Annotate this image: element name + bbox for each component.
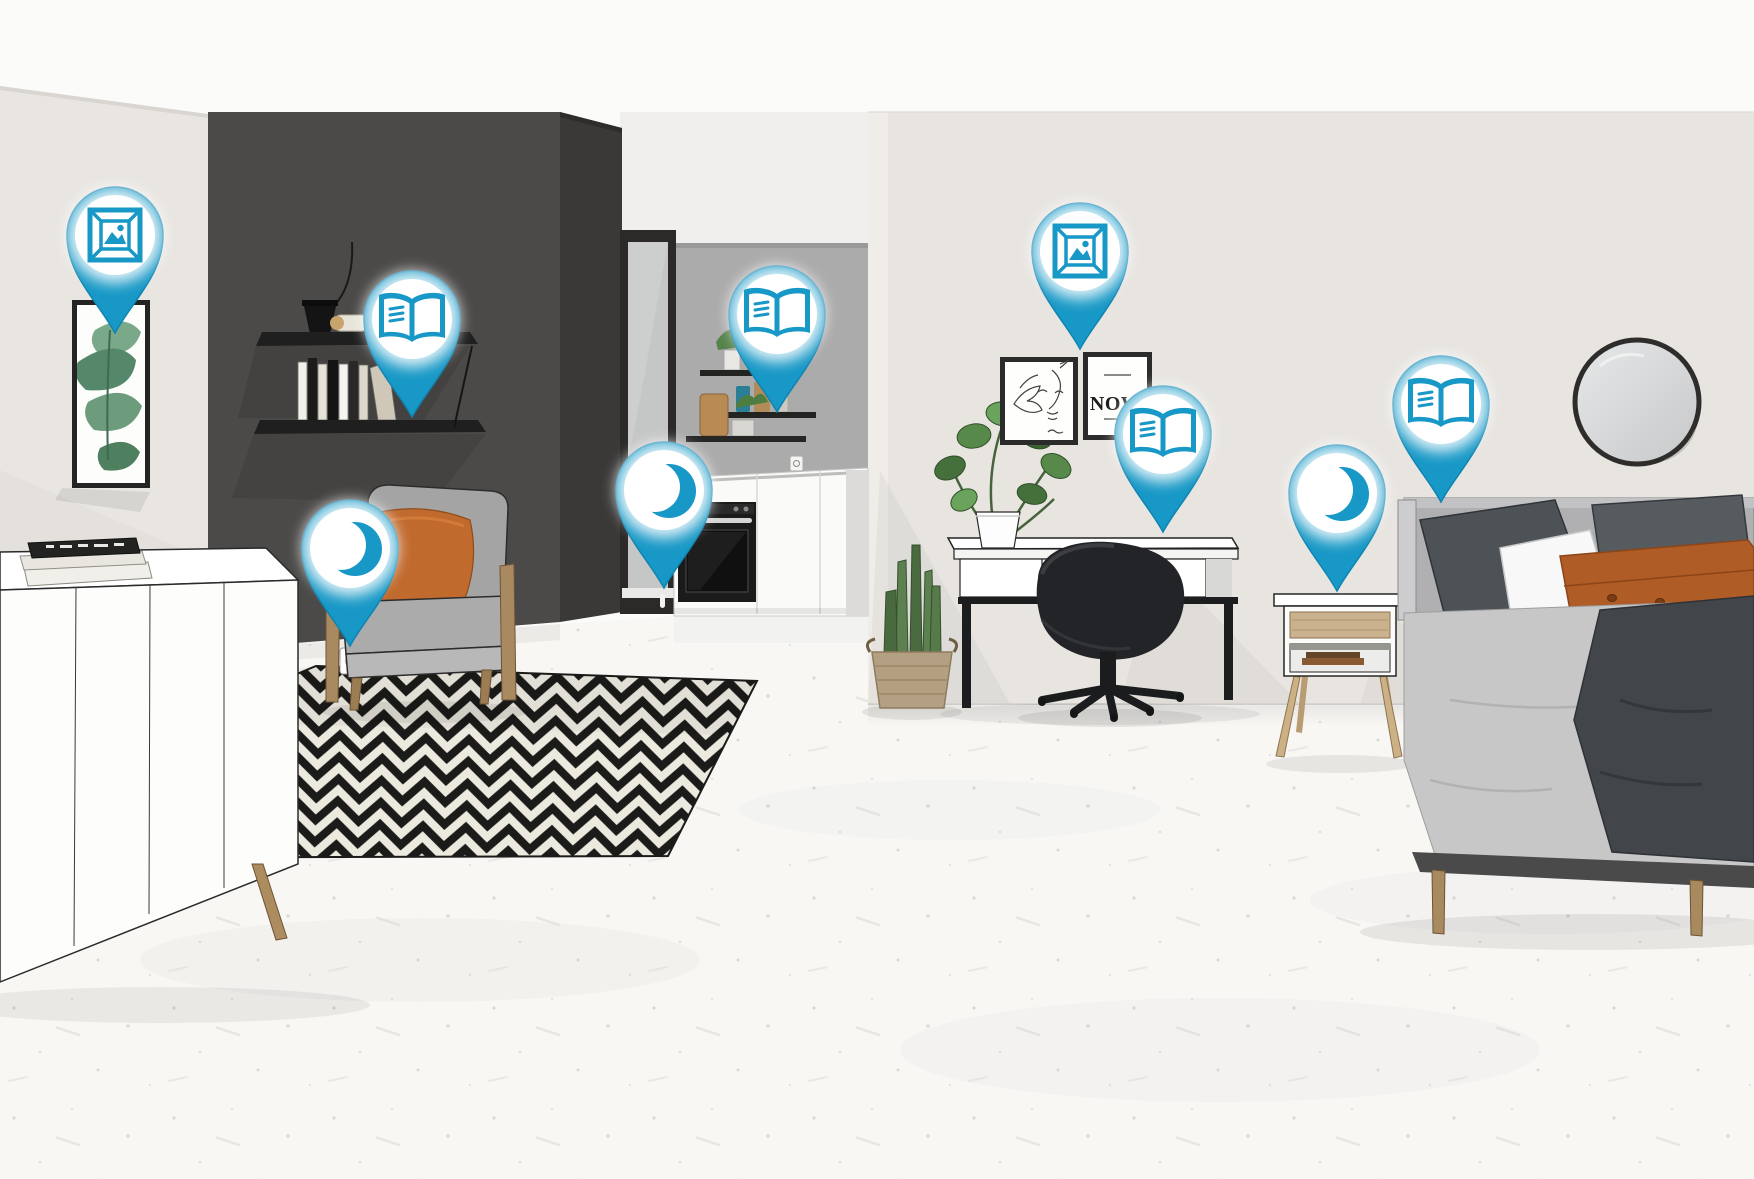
open-book-icon (1123, 394, 1203, 474)
hotspot-moon-living-room-armchair[interactable] (294, 492, 406, 649)
open-book-icon (737, 274, 817, 354)
picture-frame-icon (75, 195, 155, 275)
hotspot-moon-kitchen-doorway[interactable] (608, 434, 720, 591)
hotspot-layer (0, 0, 1754, 1179)
hotspot-open-book-bed[interactable] (1385, 348, 1497, 505)
moon-icon (1297, 453, 1377, 533)
hotspot-moon-nightstand[interactable] (1281, 437, 1393, 594)
hotspot-open-book-kitchen-shelves[interactable] (721, 258, 833, 415)
room-scene: NOW. (0, 0, 1754, 1179)
picture-frame-icon (1040, 211, 1120, 291)
hotspot-open-book-desk[interactable] (1107, 378, 1219, 535)
hotspot-open-book-living-room-shelf[interactable] (356, 263, 468, 420)
moon-icon (624, 450, 704, 530)
open-book-icon (1401, 364, 1481, 444)
open-book-icon (372, 279, 452, 359)
hotspot-picture-frame-living-room-wall-art[interactable] (59, 179, 171, 336)
hotspot-picture-frame-bedroom-wall-art[interactable] (1024, 195, 1136, 352)
moon-icon (310, 508, 390, 588)
